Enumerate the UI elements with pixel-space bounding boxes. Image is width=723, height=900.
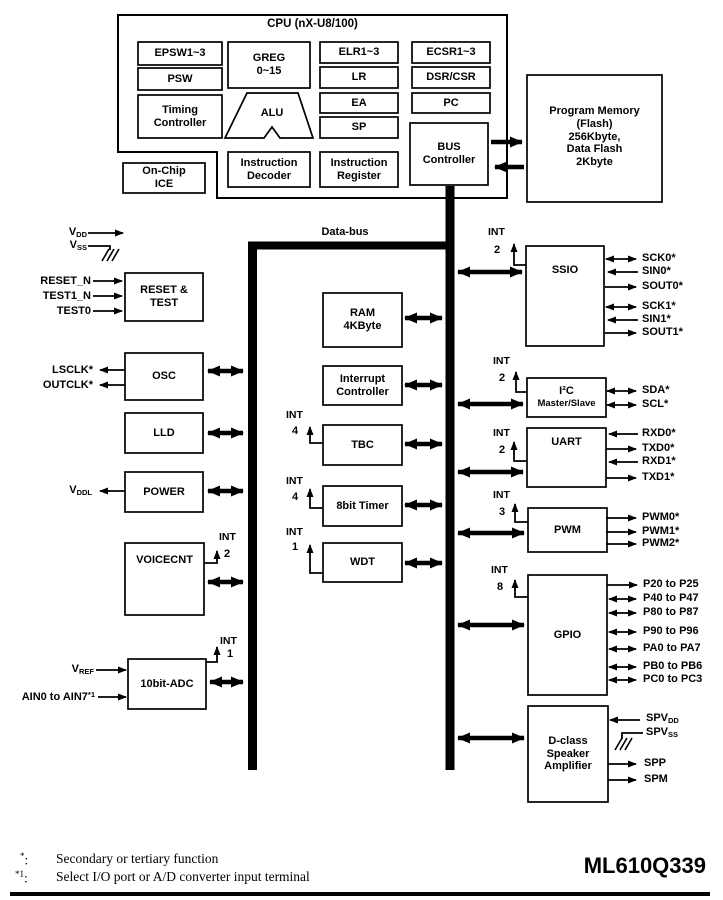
footnote1-marker: *: [20,851,28,869]
vss-ground-icon [102,249,119,261]
gpio-int-label: INT [491,565,508,576]
cpu-title: CPU (nX-U8/100) [118,17,507,32]
sin1-label: SIN1* [642,314,671,325]
wdt-int-count: 1 [292,542,298,553]
osc-label: OSC [125,353,203,400]
lld-label: LLD [125,413,203,453]
timer8-int-label: INT [286,476,303,487]
reset-test-label: RESET & TEST [127,273,201,321]
ea-label: EA [320,93,398,113]
sck0-label: SCK0* [642,253,676,264]
scl-label: SCL* [642,399,668,410]
greg-label: GREG 0~15 [228,42,310,88]
p20-label: P20 to P25 [643,579,699,590]
pc-label: PC [412,93,490,113]
data-bus-label: Data-bus [305,225,385,240]
elr-label: ELR1~3 [320,42,398,63]
vss-label: VSS [40,240,87,252]
tbc-int-label: INT [286,410,303,421]
pc-label: PC0 to PC3 [643,674,702,685]
reset-n-label: RESET_N [20,276,91,287]
spm-label: SPM [644,774,668,785]
spvss-line [622,733,643,739]
on-chip-ice-label: On-Chip ICE [123,163,205,193]
sout0-label: SOUT0* [642,281,683,292]
spvss-ground-icon [615,738,632,750]
ain-label: AIN0 to AIN7*1 [12,691,95,703]
txd0-label: TXD0* [642,443,674,454]
footnote1-text: Secondary or tertiary function [56,851,218,867]
bus-controller-label: BUS Controller [419,123,479,185]
ssio-int-label: INT [488,227,505,238]
ecsr-label: ECSR1~3 [412,42,490,63]
lsclk-label: LSCLK* [30,365,93,376]
adc-int-count: 1 [227,649,233,660]
power-label: POWER [125,472,203,512]
p40-label: P40 to P47 [643,593,699,604]
epsw-label: EPSW1~3 [138,42,222,65]
rxd1-label: RXD1* [642,456,676,467]
data-bus-rails [248,186,454,770]
block-diagram: CPU (nX-U8/100) EPSW1~3 PSW Timing Contr… [0,0,723,900]
lr-label: LR [320,67,398,88]
adc-label: 10bit-ADC [128,659,206,709]
timer8-int-arrow [310,489,323,508]
wdt-int-label: INT [286,527,303,538]
tbc-int-arrow [310,427,323,443]
instruction-register-label: Instruction Register [322,152,396,187]
spvdd-label: SPVDD [646,713,679,725]
sp-label: SP [320,117,398,138]
pwm1-label: PWM1* [642,526,679,537]
p80-label: P80 to P87 [643,607,699,618]
instruction-decoder-label: Instruction Decoder [230,152,308,187]
wdt-label: WDT [323,543,402,582]
sout1-label: SOUT1* [642,327,683,338]
footnote2-text: Select I/O port or A/D converter input t… [56,869,310,885]
vddl-label: VDDL [40,485,92,497]
voicecnt-int-arrow [204,551,217,563]
sin0-label: SIN0* [642,266,671,277]
gpio-int-arrow [515,580,528,597]
vss-line [88,246,110,250]
i2c-int-label: INT [493,356,510,367]
vdd-label: VDD [40,227,87,239]
alu-label: ALU [244,104,300,122]
voicecnt-int-label: INT [219,532,236,543]
outclk-label: OUTCLK* [30,380,93,391]
adc-int-label: INT [220,636,237,647]
sck1-label: SCK1* [642,301,676,312]
i2c-label: I²C Master/Slave [527,378,606,417]
pwm0-label: PWM0* [642,512,679,523]
pwm2-label: PWM2* [642,538,679,549]
dsr-csr-label: DSR/CSR [412,67,490,88]
ssio-label: SSIO [526,261,604,279]
ssio-int-arrow [514,244,526,265]
uart-int-count: 2 [499,445,505,456]
interrupt-controller-label: Interrupt Controller [325,366,400,405]
adc-int-arrow [206,647,217,662]
voicecnt-int-count: 2 [224,549,230,560]
pwm-label: PWM [528,508,607,552]
spp-label: SPP [644,758,666,769]
program-memory-label: Program Memory (Flash) 256Kbyte, Data Fl… [527,78,662,196]
tbc-label: TBC [323,425,402,465]
gpio-int-count: 8 [497,582,503,593]
pwm-int-count: 3 [499,507,505,518]
ssio-int-count: 2 [494,245,500,256]
sda-label: SDA* [642,385,670,396]
uart-int-arrow [514,442,527,461]
test1-n-label: TEST1_N [20,291,91,302]
test0-label: TEST0 [20,306,91,317]
tbc-int-count: 4 [292,426,298,437]
p90-label: P90 to P96 [643,626,699,637]
rxd0-label: RXD0* [642,428,676,439]
part-number: ML610Q339 [550,853,706,879]
pb-label: PB0 to PB6 [643,661,702,672]
txd1-label: TXD1* [642,472,674,483]
ram-label: RAM 4KByte [323,293,402,347]
footnote2-marker: *1: [15,869,28,887]
spvss-label: SPVSS [646,727,678,739]
wdt-int-arrow [310,545,323,573]
timer8-label: 8bit Timer [323,486,402,526]
pwm-int-label: INT [493,490,510,501]
uart-int-label: INT [493,428,510,439]
uart-label: UART [527,433,606,451]
dclass-label: D-class Speaker Amplifier [528,706,608,802]
timing-controller-label: Timing Controller [142,95,218,138]
timer8-int-count: 4 [292,492,298,503]
psw-label: PSW [138,68,222,90]
gpio-label: GPIO [528,575,607,695]
voicecnt-label: VOICECNT [125,551,204,569]
i2c-int-count: 2 [499,373,505,384]
i2c-int-arrow [516,372,527,392]
pa-label: PA0 to PA7 [643,643,701,654]
vref-label: VREF [44,664,94,676]
pwm-int-arrow [515,504,528,522]
